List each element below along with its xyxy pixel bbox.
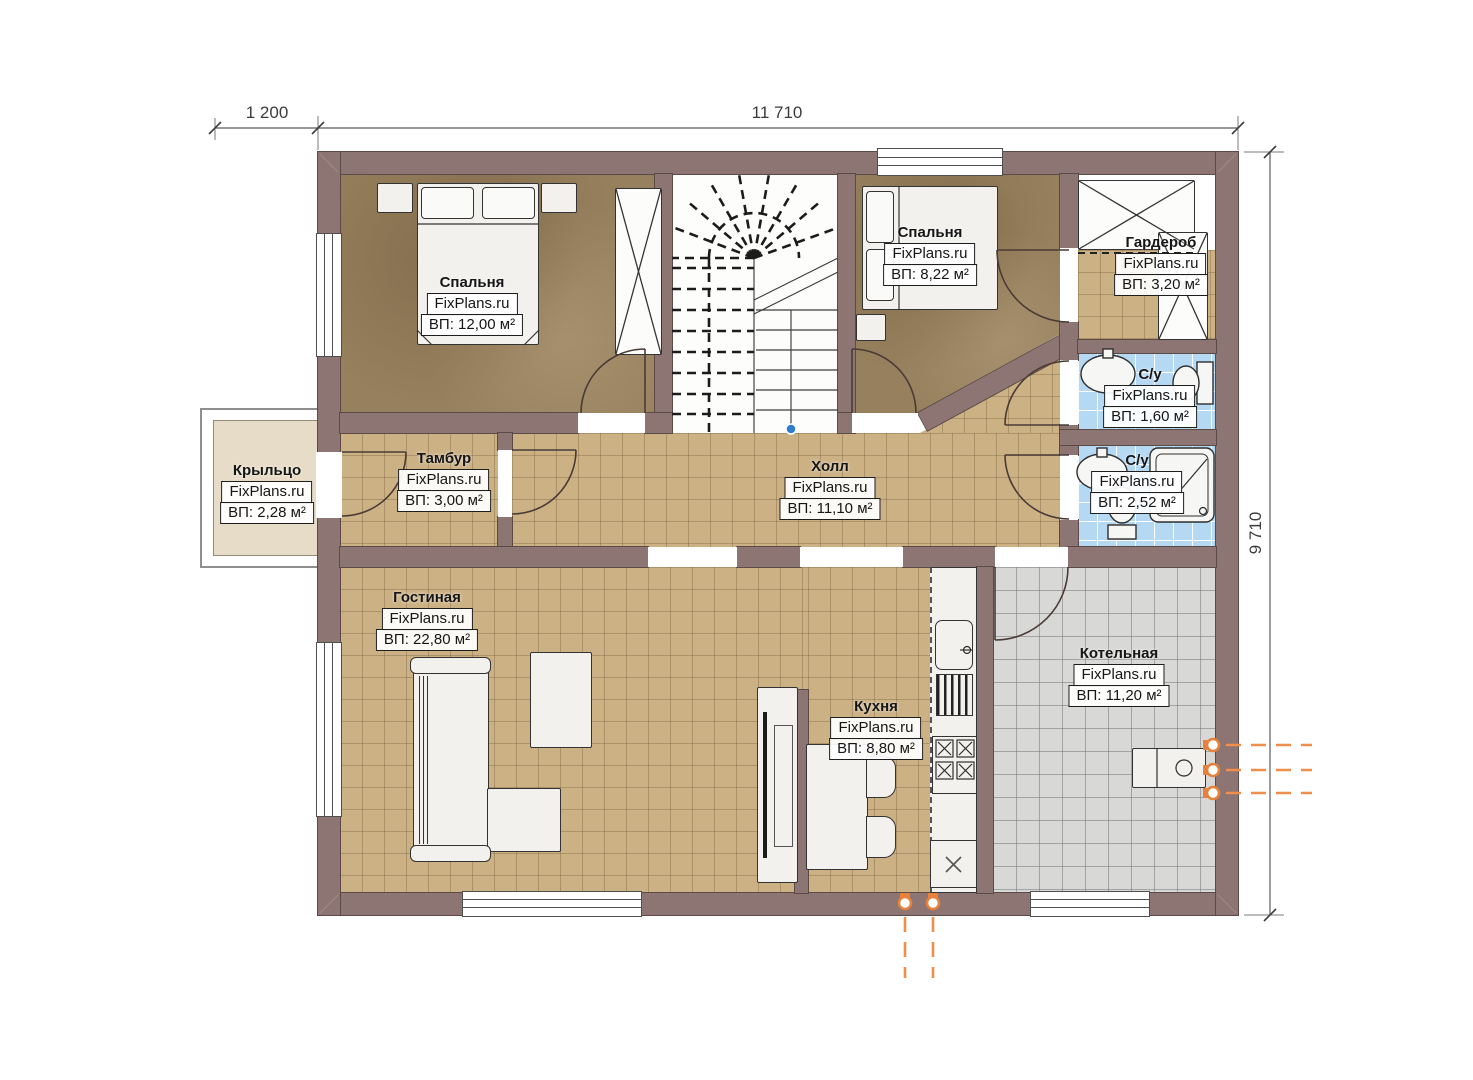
wall-corner-miters (320, 154, 1236, 913)
room-label-boiler-room: Котельная FixPlans.ru ВП: 11,20 м² (1068, 645, 1169, 707)
area-box: ВП: 12,00 м² (421, 314, 523, 337)
door-bathroom-2 (1005, 455, 1069, 519)
door-vestibule (512, 450, 576, 514)
room-name: Кухня (854, 698, 898, 715)
room-label-vestibule: Тамбур FixPlans.ru ВП: 3,00 м² (397, 450, 491, 512)
area-box: ВП: 8,22 м² (883, 264, 977, 287)
dim-label-building-width: 11 710 (752, 103, 803, 123)
room-name: Гостиная (393, 589, 461, 606)
door-bedroom-1 (581, 349, 645, 413)
room-label-hall: Холл FixPlans.ru ВП: 11,10 м² (779, 458, 880, 520)
room-name: Спальня (440, 274, 505, 291)
area-box: ВП: 3,00 м² (397, 490, 491, 513)
floor-plan-canvas: 1 200 11 710 9 710 Спальня FixPlans.ru В… (0, 0, 1473, 1080)
area-box: ВП: 2,52 м² (1090, 492, 1184, 515)
watermark-box: FixPlans.ru (1091, 471, 1182, 494)
area-box: ВП: 8,80 м² (829, 738, 923, 761)
toilet-tank-icon (1108, 525, 1136, 539)
faucet-icon (1103, 349, 1113, 358)
room-label-living-room: Гостиная FixPlans.ru ВП: 22,80 м² (376, 589, 478, 651)
stair-winder-fan (672, 174, 837, 258)
area-box: ВП: 2,28 м² (220, 502, 314, 525)
room-label-kitchen: Кухня FixPlans.ru ВП: 8,80 м² (829, 698, 923, 760)
room-label-wardrobe: Гардероб FixPlans.ru ВП: 3,20 м² (1114, 234, 1208, 296)
room-label-bedroom-2: Спальня FixPlans.ru ВП: 8,22 м² (883, 224, 977, 286)
room-name: С/у (1125, 452, 1148, 469)
watermark-box: FixPlans.ru (1073, 664, 1164, 687)
watermark-box: FixPlans.ru (381, 608, 472, 631)
stair-treads-solid (756, 310, 838, 410)
stair-treads-dashed (672, 268, 754, 414)
room-label-bathroom-1: С/у FixPlans.ru ВП: 1,60 м² (1103, 366, 1197, 428)
watermark-box: FixPlans.ru (830, 717, 921, 740)
room-name: Холл (811, 458, 849, 475)
door-bathroom-1 (1005, 361, 1069, 425)
area-box: ВП: 1,60 м² (1103, 406, 1197, 429)
watermark-box: FixPlans.ru (884, 243, 975, 266)
cross-mark-icon (946, 857, 961, 872)
area-box: ВП: 11,20 м² (1068, 685, 1169, 708)
dim-label-building-height: 9 710 (1246, 512, 1266, 555)
dim-label-porch-width: 1 200 (246, 103, 289, 123)
kitchen-fixture-details (936, 647, 974, 873)
stair-start-dot (786, 424, 796, 434)
room-name: С/у (1138, 366, 1161, 383)
staircase (672, 174, 838, 434)
utility-lines-right (1226, 745, 1312, 793)
watermark-box: FixPlans.ru (1115, 253, 1206, 276)
boiler-detail (1157, 748, 1192, 788)
watermark-box: FixPlans.ru (398, 469, 489, 492)
room-label-porch: Крыльцо FixPlans.ru ВП: 2,28 м² (220, 462, 314, 524)
door-bedroom-2 (852, 349, 916, 413)
room-name: Котельная (1080, 645, 1159, 662)
room-name: Крыльцо (233, 462, 301, 479)
door-wardrobe (997, 250, 1069, 322)
room-label-bedroom-1: Спальня FixPlans.ru ВП: 12,00 м² (421, 274, 523, 336)
watermark-box: FixPlans.ru (784, 477, 875, 500)
watermark-box: FixPlans.ru (426, 293, 517, 316)
watermark-box: FixPlans.ru (1104, 385, 1195, 408)
area-box: ВП: 3,20 м² (1114, 274, 1208, 297)
room-name: Тамбур (417, 450, 471, 467)
utility-lines-bottom (905, 917, 933, 978)
door-boiler (995, 567, 1068, 640)
stove-burners-icon (936, 740, 974, 779)
watermark-box: FixPlans.ru (221, 481, 312, 504)
area-box: ВП: 22,80 м² (376, 629, 478, 652)
stair-break-lines (754, 258, 838, 314)
room-name: Спальня (898, 224, 963, 241)
utility-valve-icons (899, 739, 1219, 909)
boiler-dial-icon (1176, 760, 1192, 776)
room-label-bathroom-2: С/у FixPlans.ru ВП: 2,52 м² (1090, 452, 1184, 514)
room-name: Гардероб (1126, 234, 1197, 251)
area-box: ВП: 11,10 м² (779, 498, 880, 521)
